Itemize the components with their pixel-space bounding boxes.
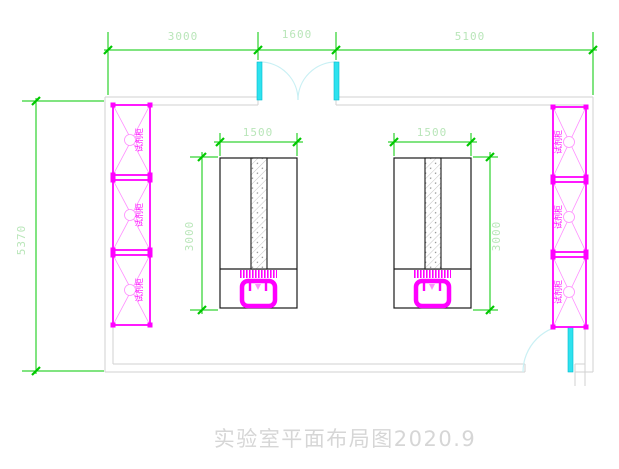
sink-fixture — [240, 270, 277, 306]
cabinet: 试剂柜 — [111, 103, 153, 178]
cabinet-label: 试剂柜 — [134, 203, 144, 227]
door-leaf — [334, 62, 339, 100]
dimension-bench-left-width: 1500 — [214, 126, 303, 156]
dim-top-left-label: 3000 — [168, 30, 199, 43]
bench-duct-hatch — [425, 158, 441, 269]
dimension-bench-right-depth: 3000 — [473, 152, 503, 314]
dimension-top: 3000 1600 5100 — [104, 28, 597, 95]
cabinet-column-right: 试剂柜 试剂柜 试剂柜 — [551, 105, 589, 330]
dim-room-depth-label: 5370 — [15, 225, 28, 256]
cabinet: 试剂柜 — [551, 180, 589, 255]
floor-plan-canvas: 3000 1600 5100 5370 试剂柜 试剂柜 — [0, 0, 619, 469]
cabinet-label: 试剂柜 — [134, 128, 144, 152]
cabinet: 试剂柜 — [551, 255, 589, 330]
top-double-door — [257, 62, 339, 100]
dim-bench-depth-label: 3000 — [490, 221, 503, 252]
dim-bench-depth-label: 3000 — [183, 221, 196, 252]
dimension-room-depth: 5370 — [15, 97, 104, 375]
drawing-title: 实验室平面布局图2020.9 — [214, 427, 476, 451]
sink-fixture — [414, 270, 451, 306]
door-swing-arc — [260, 62, 298, 100]
dimension-bench-right-width: 1500 — [388, 126, 477, 156]
dim-top-right-label: 5100 — [455, 30, 486, 43]
dim-bench-width-label: 1500 — [243, 126, 274, 139]
dim-top-middle-label: 1600 — [282, 28, 313, 41]
fixture-comb — [240, 270, 277, 278]
cabinet-label: 试剂柜 — [553, 205, 563, 229]
cabinet: 试剂柜 — [551, 105, 589, 180]
room-walls — [105, 97, 593, 386]
door-swing-arc — [298, 62, 336, 100]
cabinet-label: 试剂柜 — [134, 278, 144, 302]
cabinet-column-left: 试剂柜 试剂柜 试剂柜 — [111, 103, 153, 328]
cabinet: 试剂柜 — [111, 253, 153, 328]
cabinet-label: 试剂柜 — [553, 130, 563, 154]
dimension-bench-left-depth: 3000 — [183, 152, 218, 314]
door-leaf — [257, 62, 262, 100]
bottom-door — [523, 325, 573, 372]
cabinet-label: 试剂柜 — [553, 280, 563, 304]
cabinet: 试剂柜 — [111, 178, 153, 253]
fixture-comb — [414, 270, 451, 278]
bench-duct-hatch — [251, 158, 267, 269]
door-swing-arc — [523, 325, 570, 372]
lab-bench-left: 1500 3000 — [183, 126, 303, 314]
door-leaf — [568, 325, 573, 372]
dim-bench-width-label: 1500 — [417, 126, 448, 139]
lab-bench-right: 1500 3000 — [388, 126, 503, 314]
